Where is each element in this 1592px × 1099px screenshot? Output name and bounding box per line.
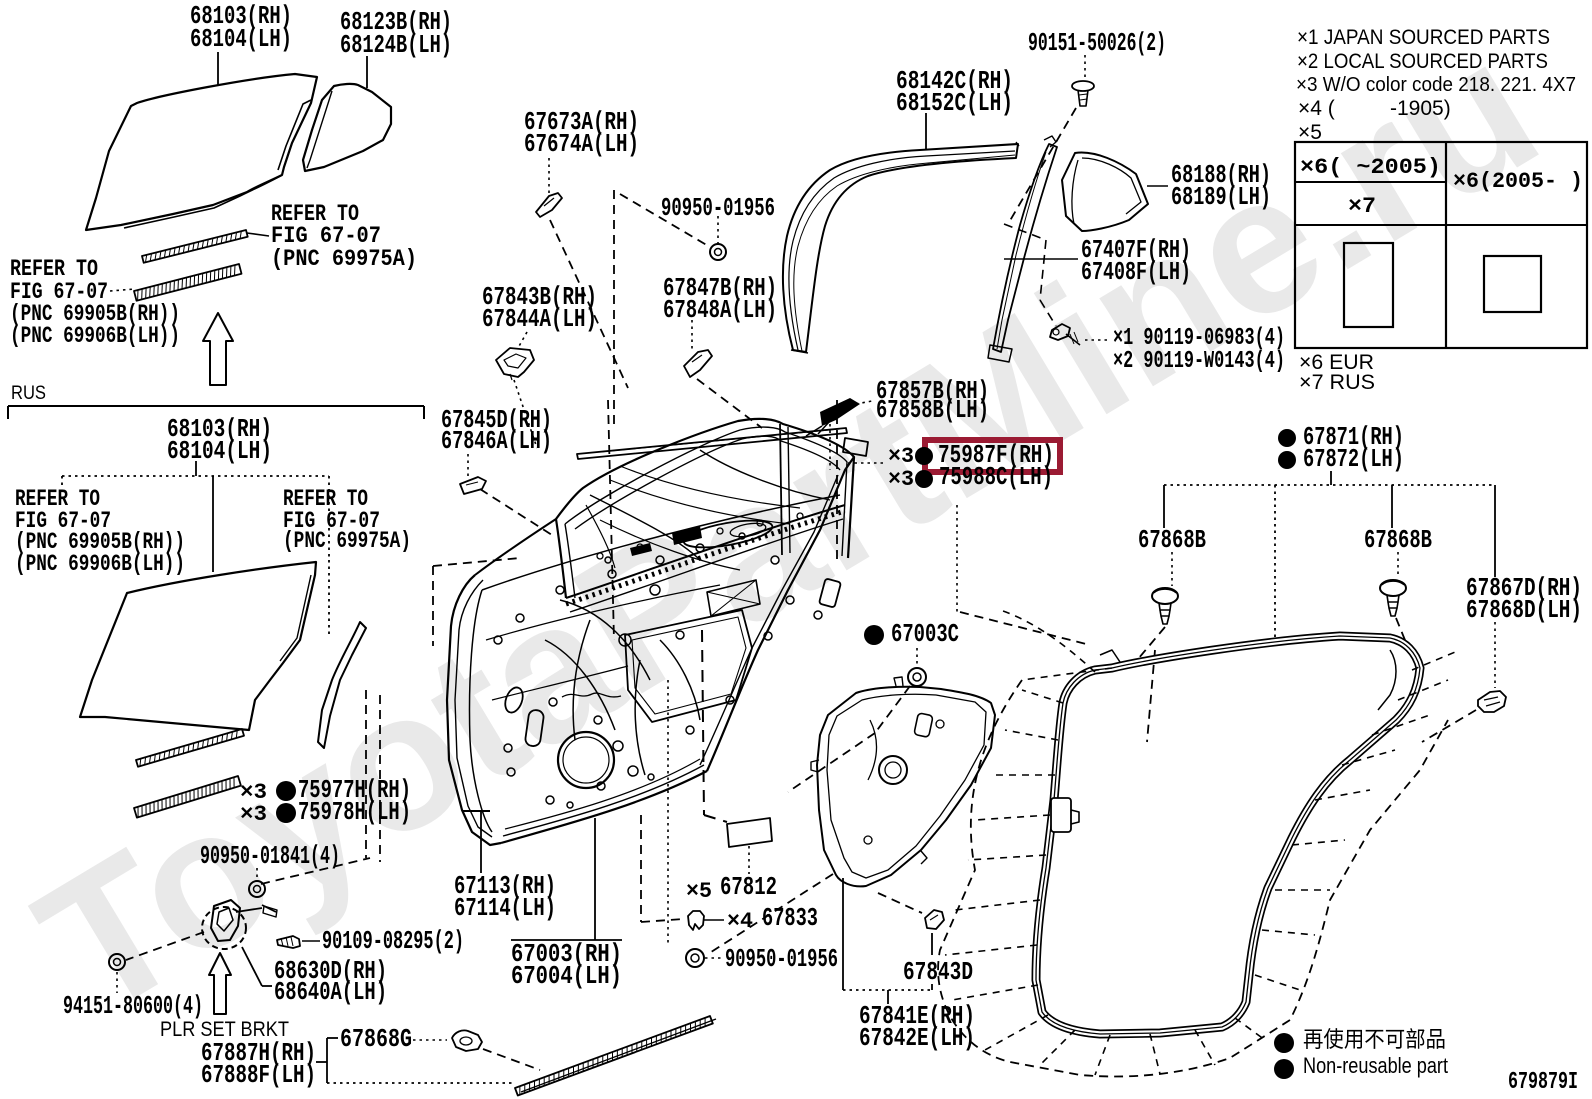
svg-text:67872(LH): 67872(LH) xyxy=(1303,444,1404,474)
svg-text:(PNC 69906B(LH)): (PNC 69906B(LH)) xyxy=(10,323,180,349)
svg-text:67114(LH): 67114(LH) xyxy=(454,893,556,923)
svg-text:再使用不可部品: 再使用不可部品 xyxy=(1303,1027,1446,1052)
svg-text:×4 (: ×4 ( xyxy=(1298,97,1335,120)
svg-text:67674A(LH): 67674A(LH) xyxy=(524,129,639,159)
svg-text:67868B: 67868B xyxy=(1138,525,1206,555)
svg-text:×3: ×3 xyxy=(888,444,914,469)
svg-text:67812: 67812 xyxy=(720,872,777,902)
svg-text:×2 90119-W0143(4): ×2 90119-W0143(4) xyxy=(1113,348,1285,375)
svg-text:94151-80600(4): 94151-80600(4) xyxy=(63,991,203,1021)
svg-text:90950-01841(4): 90950-01841(4) xyxy=(200,841,340,871)
svg-text:67833: 67833 xyxy=(762,903,818,933)
svg-text:(PNC 69975A): (PNC 69975A) xyxy=(283,528,411,554)
svg-text:×7: ×7 xyxy=(1348,194,1376,219)
svg-text:67868D(LH): 67868D(LH) xyxy=(1466,595,1582,625)
svg-text:67888F(LH): 67888F(LH) xyxy=(201,1060,316,1090)
svg-text:68189(LH): 68189(LH) xyxy=(1171,182,1271,212)
svg-text:RUS: RUS xyxy=(11,383,46,404)
svg-text:679879I: 679879I xyxy=(1508,1069,1578,1096)
svg-text:68152C(LH): 68152C(LH) xyxy=(896,88,1013,118)
svg-text:67848A(LH): 67848A(LH) xyxy=(663,295,777,325)
svg-text:68124B(LH): 68124B(LH) xyxy=(340,30,452,60)
svg-text:×6(2005- ): ×6(2005- ) xyxy=(1453,169,1583,194)
svg-text:67844A(LH): 67844A(LH) xyxy=(482,304,597,334)
svg-text:90151-50026(2): 90151-50026(2) xyxy=(1028,28,1166,58)
svg-text:75978H(LH): 75978H(LH) xyxy=(298,797,411,827)
svg-text:90109-08295(2): 90109-08295(2) xyxy=(322,926,464,956)
svg-text:67846A(LH): 67846A(LH) xyxy=(441,426,552,456)
svg-text:×6( ~2005): ×6( ~2005) xyxy=(1300,155,1441,180)
svg-text:Non-reusable part: Non-reusable part xyxy=(1303,1053,1448,1078)
svg-text:(PNC 69975A): (PNC 69975A) xyxy=(271,246,417,272)
svg-text:68104(LH): 68104(LH) xyxy=(190,24,292,54)
svg-text:68640A(LH): 68640A(LH) xyxy=(274,977,387,1007)
svg-text:67004(LH): 67004(LH) xyxy=(511,961,622,991)
svg-text:67868B: 67868B xyxy=(1364,525,1432,555)
svg-text:×3: ×3 xyxy=(240,802,267,827)
svg-text:67003C: 67003C xyxy=(891,619,959,649)
svg-text:×3 W/O color code 218. 221. 4X: ×3 W/O color code 218. 221. 4X7 xyxy=(1296,74,1576,96)
svg-text:(PNC 69906B(LH)): (PNC 69906B(LH)) xyxy=(15,551,185,577)
svg-text:67842E(LH): 67842E(LH) xyxy=(859,1023,975,1053)
svg-text:×5: ×5 xyxy=(686,879,712,904)
svg-text:×1 JAPAN SOURCED PARTS: ×1 JAPAN SOURCED PARTS xyxy=(1297,26,1550,49)
svg-text:67408F(LH): 67408F(LH) xyxy=(1081,257,1191,287)
svg-text:67868G: 67868G xyxy=(340,1024,412,1054)
svg-text:×2 LOCAL SOURCED PARTS: ×2 LOCAL SOURCED PARTS xyxy=(1297,50,1548,73)
svg-text:×4: ×4 xyxy=(727,909,753,934)
svg-text:×5: ×5 xyxy=(1298,121,1322,144)
svg-text:×3: ×3 xyxy=(888,467,914,492)
svg-text:90950-01956: 90950-01956 xyxy=(661,193,775,223)
svg-text:67843D: 67843D xyxy=(903,957,973,987)
svg-text:75988C(LH): 75988C(LH) xyxy=(939,462,1053,492)
svg-text:×7 RUS: ×7 RUS xyxy=(1299,371,1375,394)
svg-text:68104(LH): 68104(LH) xyxy=(167,436,272,466)
svg-text:67858B(LH): 67858B(LH) xyxy=(876,395,989,425)
svg-text:90950-01956: 90950-01956 xyxy=(725,944,838,974)
svg-text:-1905): -1905) xyxy=(1390,97,1451,120)
